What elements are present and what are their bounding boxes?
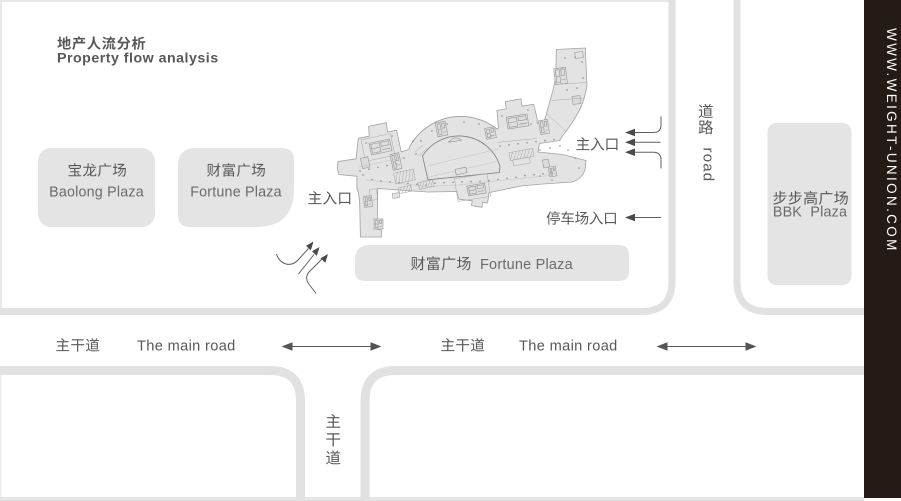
svg-text:Baolong Plaza: Baolong Plaza [49,185,144,201]
svg-text:Property flow analysis: Property flow analysis [57,51,219,67]
svg-text:Fortune Plaza: Fortune Plaza [190,185,282,201]
svg-text:The main road: The main road [137,339,236,355]
svg-text:BBK Plaza: BBK Plaza [773,205,847,221]
svg-text:The main road: The main road [519,339,618,355]
svg-text:WWW.WEIGHT-UNION.COM: WWW.WEIGHT-UNION.COM [884,28,899,253]
svg-text:Fortune Plaza: Fortune Plaza [480,257,574,273]
svg-text:road: road [700,148,717,183]
